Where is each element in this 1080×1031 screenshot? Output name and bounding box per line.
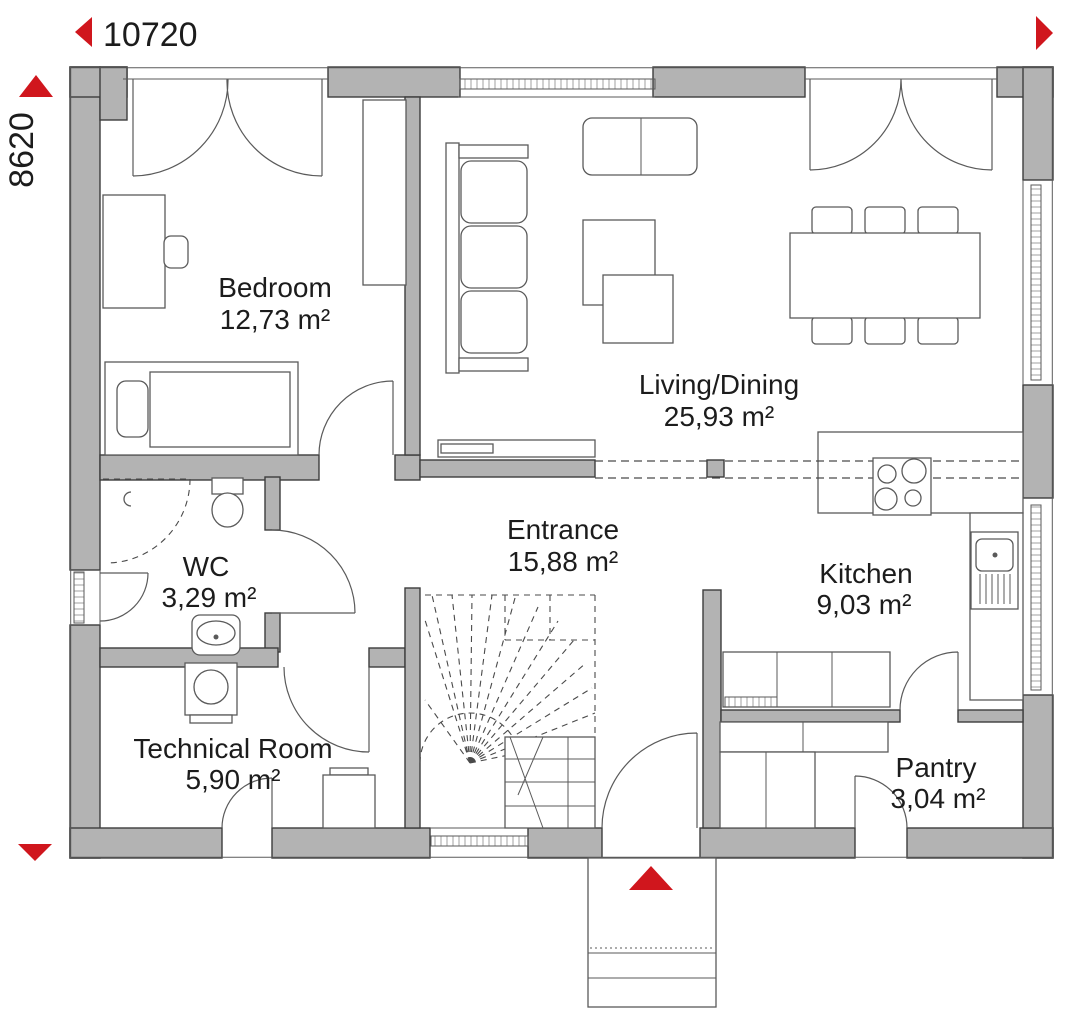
width-dimension-label: 10720 <box>103 16 198 54</box>
stair-window <box>431 836 528 846</box>
pillow <box>117 381 148 437</box>
wc-sink <box>192 615 240 655</box>
wc-window-swing <box>100 573 148 621</box>
tv-bench <box>438 440 595 457</box>
kitchen-label: Kitchen <box>819 558 912 589</box>
bedroom-area: 12,73 m² <box>220 304 331 335</box>
shower <box>103 479 190 563</box>
wardrobe <box>363 100 406 285</box>
kitchen-sink <box>971 532 1018 609</box>
dim-arrow-left-icon <box>75 17 92 47</box>
wc-window <box>74 572 84 623</box>
living-window <box>460 79 655 89</box>
pantry-label: Pantry <box>896 752 977 783</box>
technical-label: Technical Room <box>133 733 332 764</box>
shower-head-icon <box>124 492 131 506</box>
dishwasher-rack <box>725 697 777 707</box>
bedroom-french-door <box>123 79 328 176</box>
coffee-table-2 <box>603 275 673 343</box>
stairs <box>420 595 595 828</box>
washing-machine <box>185 663 237 723</box>
dim-arrow-right-icon <box>1036 16 1053 50</box>
stair-lower-flight <box>505 737 595 828</box>
main-entrance-door <box>602 733 697 828</box>
floor-plan-page: 10720 8620 Bedroom 12,73 m² Living/Dinin… <box>0 0 1080 1026</box>
dining-french-door <box>805 79 997 170</box>
desk-chair <box>164 236 188 268</box>
entrance-label: Entrance <box>507 514 619 545</box>
wc-door <box>272 530 355 613</box>
height-dimension-label: 8620 <box>3 112 41 188</box>
entrance-area: 15,88 m² <box>508 546 619 577</box>
kitchen-counter-bottom <box>723 652 890 707</box>
toilet <box>212 478 243 527</box>
wc-label: WC <box>183 551 230 582</box>
pantry-shelves <box>720 722 888 828</box>
boiler <box>323 768 375 828</box>
porch <box>588 858 716 1007</box>
dim-arrow-up-icon <box>19 75 53 97</box>
dining-side-window <box>1031 185 1041 380</box>
bed <box>105 362 298 455</box>
desk <box>103 195 165 308</box>
pantry-area: 3,04 m² <box>891 783 986 814</box>
technical-area: 5,90 m² <box>186 764 281 795</box>
kitchen-side-window <box>1031 505 1041 690</box>
dining-set <box>790 207 980 344</box>
floor-plan-canvas: 10720 8620 Bedroom 12,73 m² Living/Dinin… <box>0 0 1080 1026</box>
sideboard <box>583 118 697 175</box>
tv <box>441 444 493 453</box>
dining-table <box>790 233 980 318</box>
kitchen-area: 9,03 m² <box>817 589 912 620</box>
living-label: Living/Dining <box>639 369 799 400</box>
living-area: 25,93 m² <box>664 401 775 432</box>
french-doors <box>123 79 997 176</box>
dim-arrow-down-icon <box>18 844 52 861</box>
column <box>707 460 724 477</box>
bedroom-door <box>319 381 393 455</box>
bedroom-label: Bedroom <box>218 272 332 303</box>
kitchen-pantry-door <box>900 652 958 710</box>
sofa <box>446 143 528 373</box>
wc-area: 3,29 m² <box>162 582 257 613</box>
